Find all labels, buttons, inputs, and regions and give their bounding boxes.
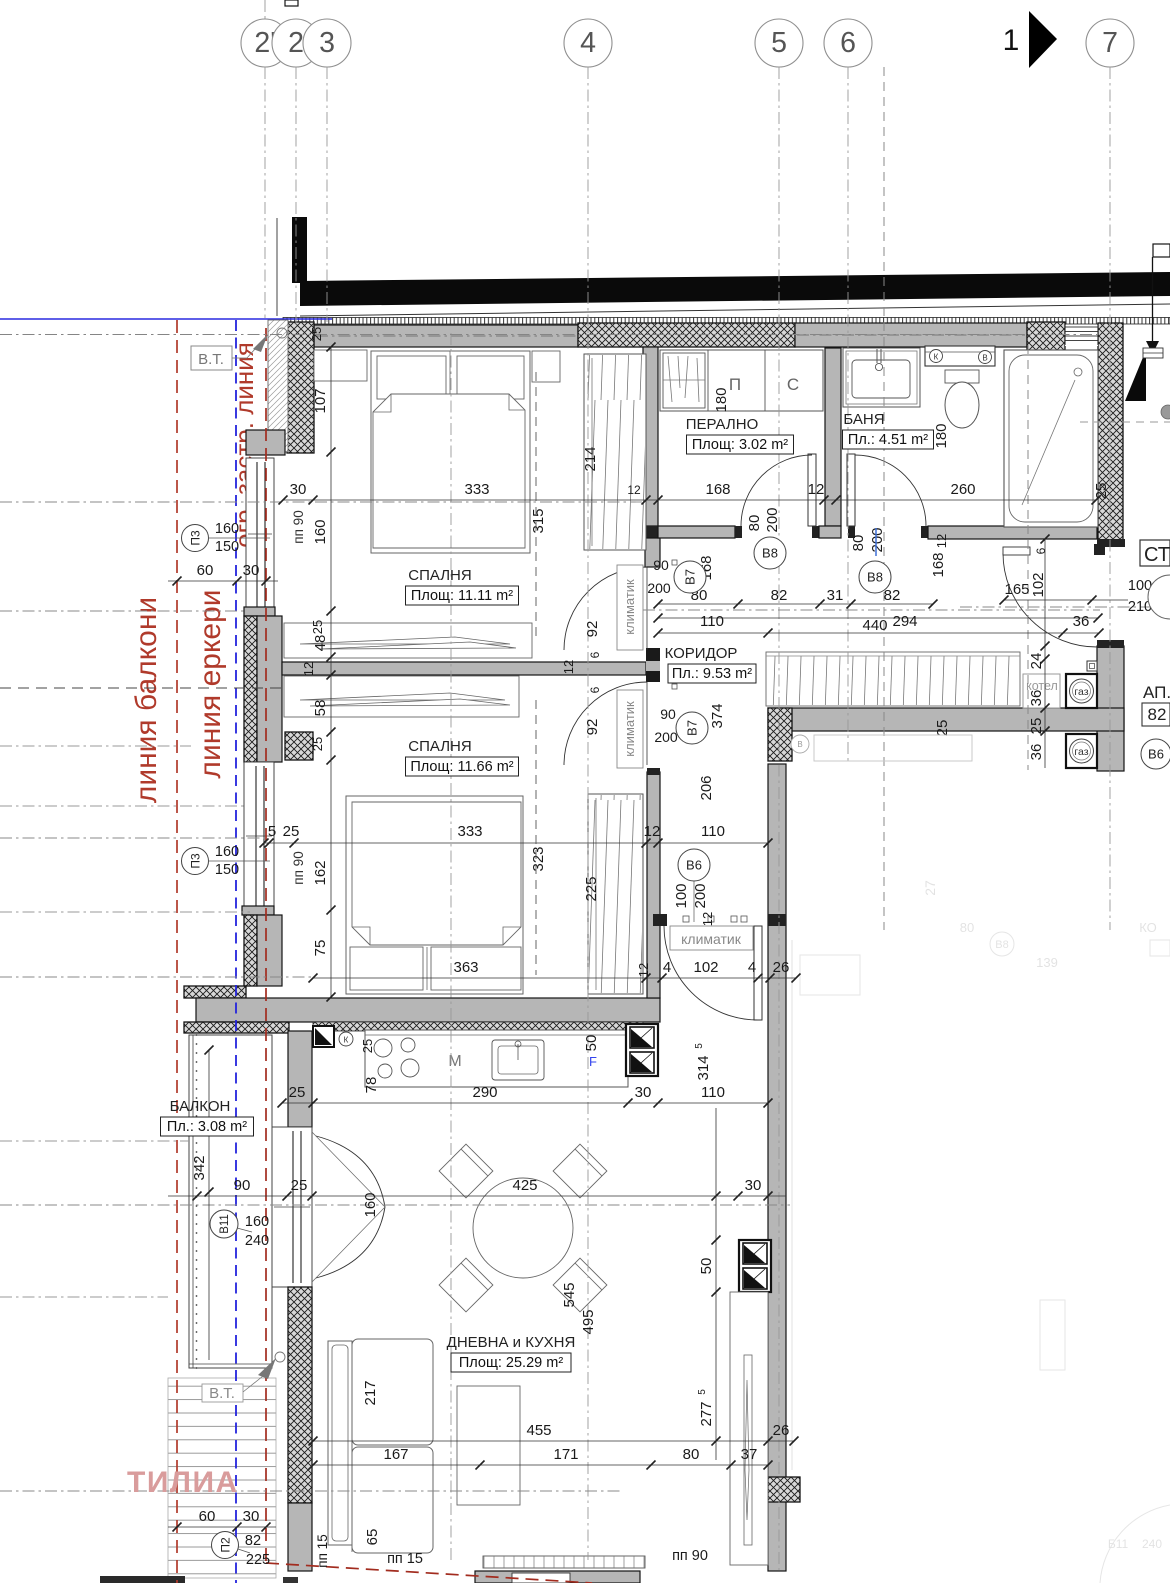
svg-text:102: 102 (1030, 572, 1047, 597)
svg-text:342: 342 (191, 1155, 208, 1180)
svg-text:БАНЯ: БАНЯ (843, 411, 884, 428)
svg-text:315: 315 (530, 508, 547, 533)
svg-text:314: 314 (695, 1055, 712, 1080)
svg-text:374: 374 (709, 703, 726, 728)
svg-text:82: 82 (884, 587, 901, 604)
svg-text:25: 25 (289, 1084, 306, 1101)
svg-text:200: 200 (764, 507, 781, 532)
svg-text:пп 90: пп 90 (291, 851, 306, 884)
svg-text:225: 225 (246, 1552, 270, 1568)
svg-text:206: 206 (698, 775, 715, 800)
svg-text:78: 78 (363, 1077, 380, 1094)
svg-text:425: 425 (512, 1177, 537, 1194)
svg-text:В6: В6 (686, 858, 702, 873)
svg-text:газ: газ (1074, 746, 1088, 758)
svg-text:30: 30 (243, 1508, 260, 1525)
svg-text:27: 27 (922, 880, 938, 896)
svg-text:495: 495 (580, 1309, 597, 1334)
svg-text:В.Т.: В.Т. (198, 351, 224, 368)
svg-text:6: 6 (840, 27, 856, 59)
svg-text:3: 3 (319, 27, 335, 59)
svg-text:180: 180 (713, 387, 730, 412)
svg-text:Пл.: 3.08 m²: Пл.: 3.08 m² (167, 1119, 247, 1135)
svg-text:200: 200 (869, 527, 886, 552)
svg-text:290: 290 (472, 1084, 497, 1101)
svg-text:165: 165 (1004, 581, 1029, 598)
svg-text:6: 6 (588, 651, 602, 658)
svg-text:75: 75 (312, 940, 329, 957)
svg-text:F: F (589, 1054, 597, 1069)
svg-text:П2: П2 (218, 1537, 232, 1553)
svg-text:30: 30 (290, 481, 307, 498)
svg-text:25: 25 (283, 823, 300, 840)
svg-text:31: 31 (827, 587, 844, 604)
svg-text:В.Т.: В.Т. (209, 1385, 235, 1402)
svg-text:пп 90: пп 90 (291, 510, 306, 543)
svg-text:171: 171 (553, 1446, 578, 1463)
svg-text:К: К (934, 353, 939, 362)
svg-text:6: 6 (1034, 547, 1048, 554)
svg-text:48: 48 (312, 635, 329, 652)
svg-text:АП.: АП. (1143, 683, 1170, 702)
svg-text:200: 200 (692, 883, 709, 908)
svg-text:440: 440 (862, 617, 887, 634)
svg-text:4: 4 (580, 27, 596, 59)
svg-text:Площ: 3.02 m²: Площ: 3.02 m² (692, 437, 788, 453)
svg-text:80: 80 (960, 920, 974, 935)
svg-text:25: 25 (291, 1177, 308, 1194)
svg-text:240: 240 (1142, 1537, 1162, 1551)
svg-text:4: 4 (748, 959, 756, 976)
svg-text:26: 26 (773, 959, 790, 976)
svg-text:Пл.: 4.51 m²: Пл.: 4.51 m² (848, 432, 928, 448)
svg-text:92: 92 (584, 621, 601, 638)
svg-text:30: 30 (745, 1177, 762, 1194)
svg-text:М: М (448, 1053, 461, 1070)
svg-text:200: 200 (654, 729, 678, 745)
svg-text:50: 50 (698, 1258, 715, 1275)
svg-text:160: 160 (215, 844, 239, 860)
svg-text:12: 12 (636, 963, 651, 977)
svg-text:37: 37 (741, 1446, 758, 1463)
svg-text:ПЕРАЛНО: ПЕРАЛНО (686, 416, 758, 433)
svg-text:П3: П3 (188, 853, 202, 869)
svg-text:168: 168 (930, 552, 947, 577)
svg-text:В8: В8 (867, 570, 883, 585)
svg-text:214: 214 (582, 446, 599, 471)
svg-text:газ: газ (1074, 686, 1088, 698)
svg-text:225: 225 (583, 876, 600, 901)
svg-text:217: 217 (362, 1380, 379, 1405)
svg-text:30: 30 (243, 562, 260, 579)
svg-text:5: 5 (771, 27, 787, 59)
svg-text:КОРИДОР: КОРИДОР (665, 645, 738, 662)
svg-text:180: 180 (933, 423, 950, 448)
svg-text:СПАЛНЯ: СПАЛНЯ (408, 738, 471, 755)
svg-text:160: 160 (215, 521, 239, 537)
svg-text:Площ: 11.66 m²: Площ: 11.66 m² (410, 759, 513, 775)
svg-text:102: 102 (693, 959, 718, 976)
svg-text:ДНЕВНА и КУХНЯ: ДНЕВНА и КУХНЯ (447, 1334, 576, 1351)
svg-text:25: 25 (1028, 718, 1045, 735)
svg-text:110: 110 (701, 1084, 725, 1101)
svg-text:80: 80 (850, 535, 867, 552)
svg-text:25: 25 (934, 720, 951, 737)
svg-text:323: 323 (530, 846, 547, 871)
svg-text:12: 12 (808, 481, 825, 498)
svg-text:36: 36 (1073, 613, 1090, 630)
svg-text:В8: В8 (762, 546, 778, 561)
svg-text:90: 90 (660, 706, 676, 722)
svg-text:110: 110 (700, 613, 724, 630)
svg-text:363: 363 (453, 959, 478, 976)
svg-text:12: 12 (934, 534, 949, 548)
svg-text:82: 82 (245, 1533, 261, 1549)
svg-text:160: 160 (245, 1214, 269, 1230)
svg-text:БАЛКОН: БАЛКОН (170, 1098, 231, 1115)
svg-text:12: 12 (561, 660, 576, 674)
svg-text:Б11: Б11 (1108, 1537, 1129, 1551)
svg-text:К: К (344, 1036, 349, 1045)
svg-text:160: 160 (362, 1192, 379, 1217)
svg-text:5: 5 (268, 823, 276, 840)
svg-text:150: 150 (215, 539, 239, 555)
svg-text:В: В (797, 740, 802, 749)
svg-text:пп 15: пп 15 (315, 1534, 330, 1567)
svg-text:36: 36 (1028, 690, 1045, 707)
svg-text:80: 80 (683, 1446, 700, 1463)
svg-text:6: 6 (588, 686, 602, 693)
svg-text:В11: В11 (219, 1214, 231, 1234)
svg-text:260: 260 (950, 481, 975, 498)
svg-text:пп 90: пп 90 (672, 1548, 708, 1564)
svg-text:294: 294 (892, 613, 917, 630)
svg-text:90: 90 (653, 557, 669, 573)
svg-text:160: 160 (312, 519, 329, 544)
svg-text:25: 25 (1093, 483, 1110, 500)
svg-text:168: 168 (705, 481, 730, 498)
svg-text:12: 12 (644, 823, 661, 840)
svg-text:455: 455 (526, 1422, 551, 1439)
svg-text:пп 15: пп 15 (387, 1551, 423, 1567)
svg-text:60: 60 (197, 562, 214, 579)
svg-text:25: 25 (360, 1039, 375, 1053)
svg-text:107: 107 (312, 388, 329, 413)
svg-text:26: 26 (773, 1422, 790, 1439)
svg-text:139: 139 (1036, 955, 1058, 970)
svg-text:36: 36 (1028, 744, 1045, 761)
svg-text:П3: П3 (188, 530, 202, 546)
svg-text:90: 90 (234, 1177, 251, 1194)
svg-text:Пл.: 9.53 m²: Пл.: 9.53 m² (672, 666, 752, 682)
svg-text:ТИЛИА: ТИЛИА (127, 1466, 239, 1499)
svg-text:240: 240 (245, 1233, 269, 1249)
svg-text:СТ: СТ (1144, 544, 1170, 566)
svg-text:82: 82 (771, 587, 788, 604)
svg-text:82: 82 (1148, 705, 1167, 724)
svg-text:110: 110 (701, 823, 725, 840)
svg-text:100: 100 (673, 883, 690, 908)
svg-text:КО: КО (1139, 920, 1157, 935)
svg-text:12: 12 (627, 483, 641, 497)
svg-text:С: С (787, 375, 799, 394)
svg-text:В: В (982, 354, 987, 363)
svg-text:50: 50 (583, 1035, 600, 1052)
svg-text:12: 12 (700, 912, 715, 926)
svg-text:4: 4 (663, 959, 671, 976)
svg-text:30: 30 (635, 1084, 652, 1101)
svg-text:333: 333 (464, 481, 489, 498)
svg-text:климатик: климатик (622, 701, 637, 757)
svg-text:545: 545 (561, 1282, 578, 1307)
svg-text:65: 65 (364, 1529, 381, 1546)
svg-text:5: 5 (694, 1043, 705, 1049)
svg-text:В7: В7 (685, 720, 700, 736)
svg-text:СПАЛНЯ: СПАЛНЯ (408, 567, 471, 584)
svg-text:25: 25 (310, 620, 325, 634)
svg-text:24: 24 (1028, 653, 1045, 670)
svg-text:200: 200 (647, 580, 671, 596)
svg-text:В6: В6 (1148, 747, 1164, 762)
svg-text:климатик: климатик (622, 579, 637, 635)
svg-text:5: 5 (697, 1389, 708, 1395)
svg-text:П: П (729, 375, 741, 394)
svg-text:150: 150 (215, 862, 239, 878)
svg-text:линия балкони: линия балкони (130, 597, 163, 803)
svg-text:Площ: 25.29 m²: Площ: 25.29 m² (459, 1355, 563, 1371)
svg-text:7: 7 (1102, 27, 1118, 59)
svg-text:162: 162 (312, 860, 329, 885)
svg-text:12: 12 (301, 662, 316, 676)
svg-text:линия еркери: линия еркери (194, 589, 227, 778)
svg-text:333: 333 (457, 823, 482, 840)
svg-text:277: 277 (698, 1401, 715, 1426)
svg-text:92: 92 (584, 719, 601, 736)
svg-text:климатик: климатик (681, 931, 742, 947)
svg-text:В7: В7 (683, 569, 698, 585)
svg-text:1: 1 (1003, 24, 1020, 57)
svg-text:2: 2 (288, 27, 304, 59)
svg-text:60: 60 (199, 1508, 216, 1525)
svg-text:25: 25 (310, 737, 325, 751)
svg-text:167: 167 (383, 1446, 408, 1463)
svg-text:58: 58 (312, 700, 329, 717)
svg-text:В8: В8 (995, 939, 1008, 951)
svg-text:80: 80 (746, 515, 763, 532)
svg-text:25: 25 (309, 327, 324, 341)
svg-text:Площ: 11.11 m²: Площ: 11.11 m² (411, 588, 513, 604)
